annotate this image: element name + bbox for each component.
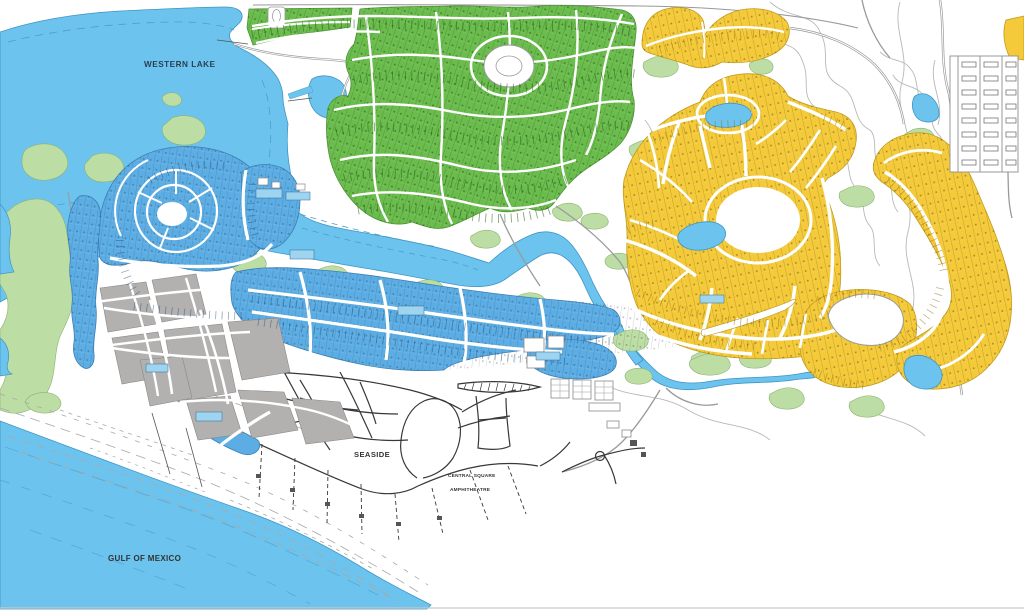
- svg-text:GULF OF MEXICO: GULF OF MEXICO: [108, 554, 181, 563]
- svg-text:SEASIDE: SEASIDE: [354, 450, 390, 459]
- svg-text:CENTRAL SQUARE: CENTRAL SQUARE: [448, 473, 496, 479]
- svg-text:WESTERN LAKE: WESTERN LAKE: [144, 60, 216, 69]
- svg-text:AMPHITHEATRE: AMPHITHEATRE: [450, 487, 491, 493]
